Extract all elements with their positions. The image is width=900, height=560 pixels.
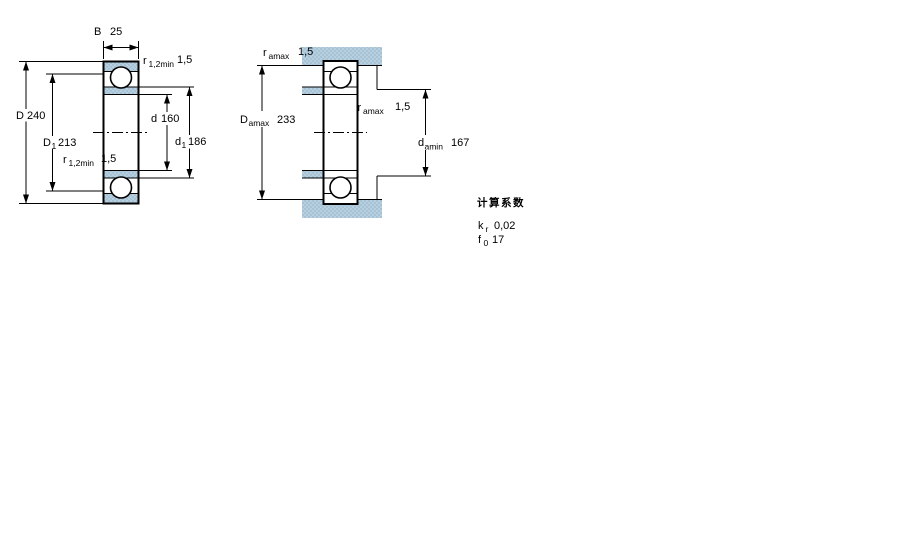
fillet-label-side: r1,2min1,5: [63, 153, 116, 168]
ball-bottom: [330, 177, 351, 198]
dim-d-label: d160: [151, 113, 179, 125]
calculation-factors: 计算系数 kr0,02 f017: [477, 196, 525, 248]
abutment-fillet-label-mid: ramax1,5: [358, 101, 411, 116]
factors-title: 计算系数: [477, 196, 525, 209]
right-mounting-figure: Damax233 damin167 ramax1,5 ramax1,5: [238, 46, 473, 218]
dim-D-label: D240: [16, 110, 45, 122]
dim-B-label: B25: [94, 26, 122, 38]
dimension-Damax: Damax233: [238, 66, 297, 200]
dim-d1-label: d1186: [175, 136, 206, 150]
shoulder-strip-top: [302, 87, 324, 95]
fillet-label-top: r1,2min1,5: [143, 54, 192, 69]
ball-bottom: [111, 177, 132, 198]
factor-f0: f017: [478, 234, 504, 248]
ball-top: [330, 67, 351, 88]
bearing-technical-drawing: B25 D240 D1213 d160: [0, 0, 900, 560]
dim-D1-label: D1213: [43, 137, 76, 151]
dimension-B: B25: [94, 26, 139, 59]
shoulder-strip-bottom: [302, 171, 324, 179]
dimension-damin: damin167: [416, 90, 473, 177]
damin-extension-leaders: [377, 66, 431, 200]
bearing-drawing-page: B25 D240 D1213 d160: [0, 0, 900, 560]
factor-kr: kr0,02: [478, 220, 515, 234]
ball-top: [111, 67, 132, 88]
dimension-d1: d1186: [139, 87, 216, 178]
dimension-D: D240: [14, 62, 104, 204]
left-bearing-figure: B25 D240 D1213 d160: [14, 26, 215, 204]
